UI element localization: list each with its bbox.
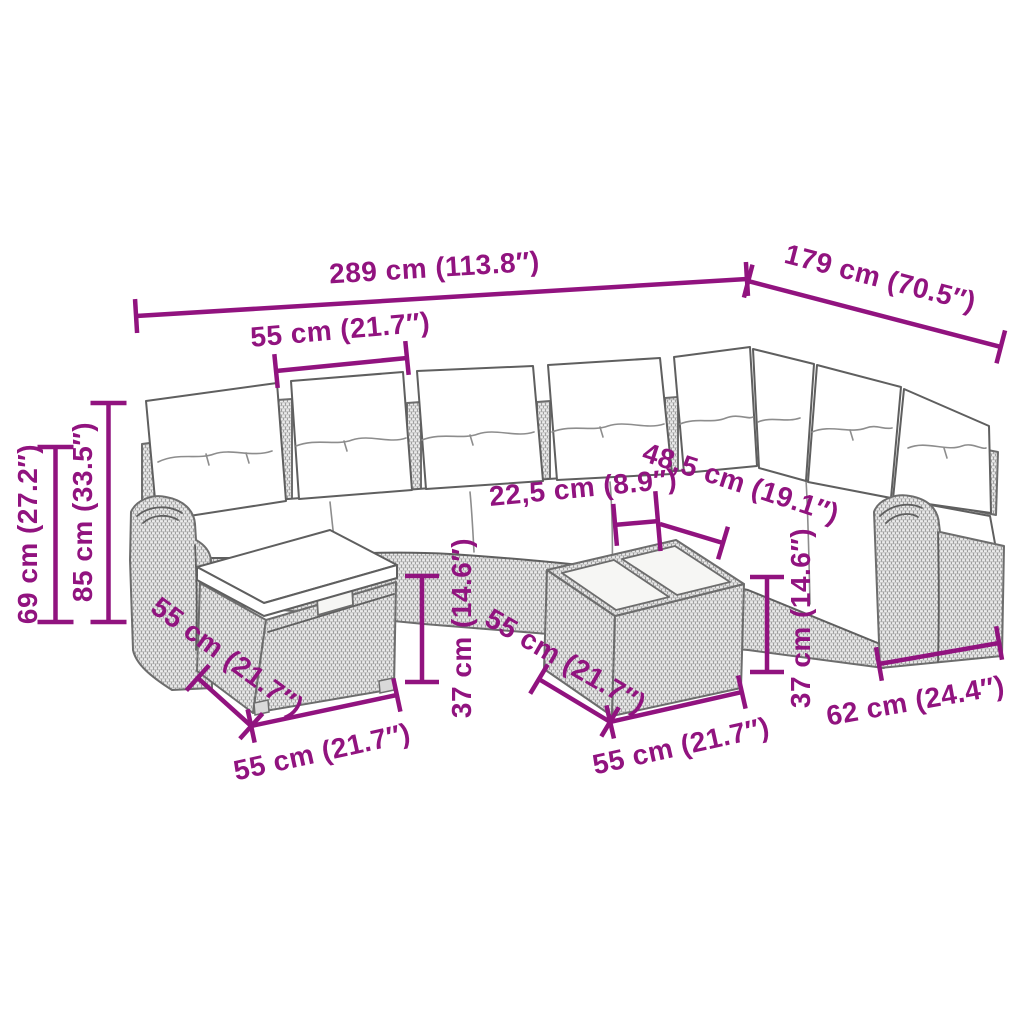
dimension-label: 55 cm (21.7″) — [231, 717, 414, 786]
dimension-label: 289 cm (113.8″) — [328, 246, 540, 290]
dimension-label: 62 cm (24.4″) — [824, 670, 1007, 732]
dimension-label: 179 cm (70.5″) — [781, 238, 979, 317]
back-pillow — [893, 389, 991, 513]
back-pillow — [417, 366, 543, 489]
dimension-total-height: 85 cm (33.5″) — [67, 403, 127, 622]
back-pillow — [291, 372, 412, 499]
dimension-seat-back-height: 69 cm (27.2″) — [12, 444, 74, 624]
diagram-svg: 289 cm (113.8″) 179 cm (70.5″) 55 cm (21… — [0, 0, 1024, 1024]
dimension-diagram: 289 cm (113.8″) 179 cm (70.5″) 55 cm (21… — [0, 0, 1024, 1024]
dimension-overall-width: 289 cm (113.8″) — [135, 246, 748, 333]
dimension-label: 37 cm (14.6″) — [446, 538, 477, 718]
dimension-label: 69 cm (27.2″) — [12, 444, 43, 624]
dimension-label: 37 cm (14.6″) — [785, 528, 816, 708]
back-pillow — [808, 365, 901, 498]
back-pillow — [753, 349, 814, 481]
dimension-label: 85 cm (33.5″) — [67, 422, 98, 602]
dimension-overall-depth: 179 cm (70.5″) — [744, 238, 1005, 363]
